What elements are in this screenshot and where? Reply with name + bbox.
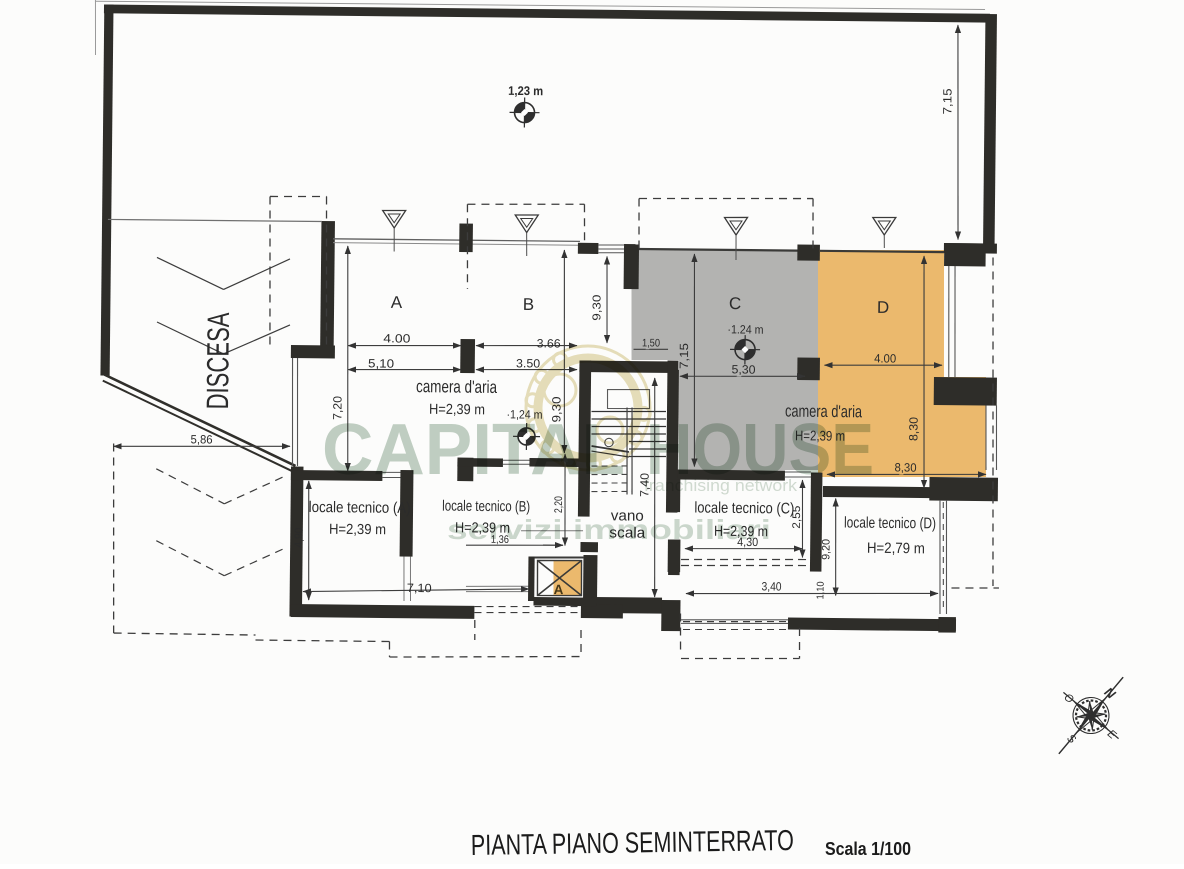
svg-text:locale tecnico (D): locale tecnico (D) xyxy=(844,514,936,532)
svg-text:·1.24 m: ·1.24 m xyxy=(727,322,763,336)
svg-text:camera d'aria: camera d'aria xyxy=(416,376,497,397)
svg-text:5,10: 5,10 xyxy=(368,356,395,370)
svg-text:D: D xyxy=(877,298,889,317)
svg-text:locale tecnico (A): locale tecnico (A) xyxy=(309,499,411,517)
svg-text:3.50: 3.50 xyxy=(516,356,540,370)
svg-text:B: B xyxy=(523,295,535,314)
svg-text:5,86: 5,86 xyxy=(191,432,213,446)
svg-text:franchising network: franchising network xyxy=(644,477,798,495)
svg-text:H=2,79 m: H=2,79 m xyxy=(867,540,925,558)
svg-text:3.66: 3.66 xyxy=(537,336,561,350)
svg-text:3,40: 3,40 xyxy=(761,579,781,593)
svg-text:7,15: 7,15 xyxy=(677,343,691,370)
svg-text:8,30: 8,30 xyxy=(894,460,916,474)
svg-text:9,30: 9,30 xyxy=(591,295,603,321)
svg-text:8,30: 8,30 xyxy=(906,417,920,441)
svg-text:servizi immobiliari: servizi immobiliari xyxy=(447,514,771,545)
svg-text:H=2,39 m: H=2,39 m xyxy=(329,522,386,539)
svg-text:7,15: 7,15 xyxy=(940,88,954,115)
svg-text:C: C xyxy=(729,294,741,313)
svg-text:4.00: 4.00 xyxy=(383,331,411,345)
svg-text:2,20: 2,20 xyxy=(553,496,565,513)
svg-text:DISCESA: DISCESA xyxy=(200,312,236,410)
svg-text:locale tecnico (B): locale tecnico (B) xyxy=(442,498,530,516)
svg-text:Scala 1/100: Scala 1/100 xyxy=(825,838,911,859)
svg-text:1,23 m: 1,23 m xyxy=(508,84,543,98)
svg-text:4,90: 4,90 xyxy=(293,528,305,548)
svg-text:A: A xyxy=(391,293,403,312)
svg-text:1,10: 1,10 xyxy=(815,581,826,600)
svg-text:CAPITAL: CAPITAL xyxy=(322,410,625,490)
svg-text:A: A xyxy=(554,582,564,597)
svg-text:1,50: 1,50 xyxy=(642,337,660,349)
svg-text:PIANTA PIANO SEMINTERRATO: PIANTA PIANO SEMINTERRATO xyxy=(471,825,794,862)
svg-text:5,30: 5,30 xyxy=(731,362,755,376)
svg-text:4.00: 4.00 xyxy=(874,351,896,365)
svg-text:7,10: 7,10 xyxy=(407,581,432,595)
svg-text:9,20: 9,20 xyxy=(820,539,832,560)
